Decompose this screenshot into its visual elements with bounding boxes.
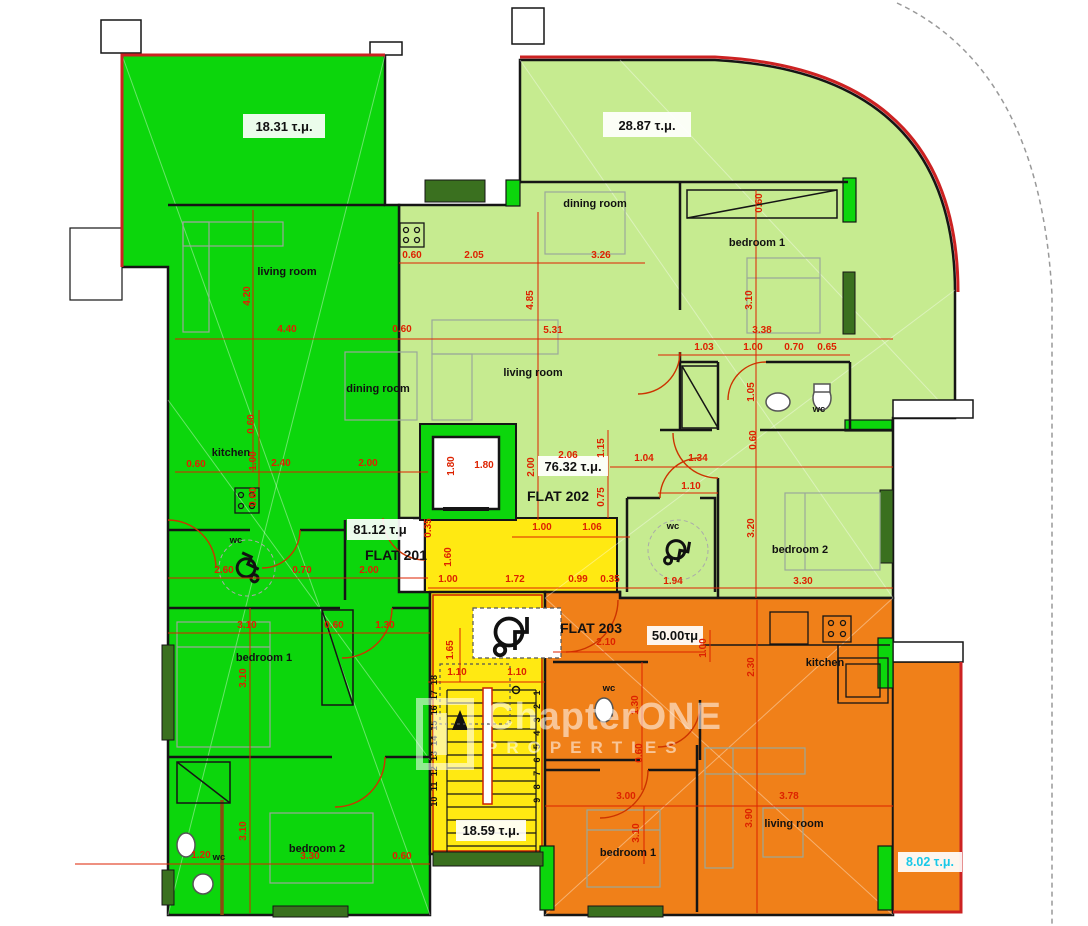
stair-step-number: 18 (429, 675, 439, 685)
stair-step-number: 8 (532, 784, 542, 789)
dimension-label: 1.00 (532, 522, 552, 533)
dimension-label: 5.31 (543, 325, 563, 336)
stair-step-number: 17 (429, 690, 439, 700)
dimension-label: 0.60 (754, 193, 765, 213)
stairwell-area-label: 18.59 τ.μ. (462, 823, 519, 838)
room-202-bedroom2: bedroom 2 (772, 544, 828, 556)
room-201-kitchen: kitchen (212, 447, 251, 459)
dimension-label: 1.04 (634, 453, 654, 464)
stair-step-number: 9 (532, 798, 542, 803)
balcony-203-area-label: 8.02 τ.μ. (906, 855, 954, 869)
dimension-label: 1.05 (746, 382, 757, 402)
dimension-label: 1.65 (445, 640, 456, 660)
dimension-label: 0.99 (568, 574, 588, 585)
dimension-label: 0.60 (748, 430, 759, 450)
dimension-label: 3.30 (300, 851, 320, 862)
dimension-label: 0.60 (392, 324, 412, 335)
room-202-dining: dining room (563, 198, 627, 210)
dimension-label: 0.60 (634, 743, 645, 763)
flat-202-label: FLAT 202 (527, 488, 589, 504)
dimension-label: 3.10 (744, 290, 755, 310)
stair-step-number: 2 (532, 704, 542, 709)
dimension-label: 1.00 (698, 638, 709, 658)
room-203-kitchen: kitchen (806, 657, 845, 669)
dimension-label: 1.60 (443, 547, 454, 567)
dimension-label: 1.72 (505, 574, 525, 585)
flat-203-area-label: 50.00τμ (652, 628, 698, 643)
stair-step-number: 10 (429, 797, 439, 807)
room-203-living: living room (764, 818, 824, 830)
dimension-label: 4.40 (277, 324, 297, 335)
dimension-label: 1.80 (474, 460, 494, 471)
room-202-bedroom1: bedroom 1 (729, 237, 785, 249)
dimension-label: 3.10 (238, 821, 249, 841)
dimension-label: 0.60 (186, 459, 206, 470)
dimension-label: 3.10 (238, 668, 249, 688)
dimension-label: 4.20 (242, 286, 253, 306)
room-203-wc: wc (602, 683, 616, 694)
dimension-label: 1.06 (582, 522, 602, 533)
room-201-bedroom1: bedroom 1 (236, 652, 292, 664)
stair-step-number: 11 (429, 782, 439, 792)
dimension-label: 2.10 (596, 637, 616, 648)
room-201-living: living room (257, 266, 317, 278)
stair-step-number: 14 (429, 736, 439, 746)
room-203-bedroom1: bedroom 1 (600, 847, 656, 859)
sink-201b (193, 874, 213, 894)
dimension-label: 0.60 (324, 620, 344, 631)
room-202-wc2: wc (666, 521, 680, 532)
stair-step-number: 3 (532, 717, 542, 722)
dimension-label: 1.00 (438, 574, 458, 585)
floor-plan-stage: 18.31 τ.μ. 28.87 τ.μ. 76.32 τ.μ. 81.12 τ… (0, 0, 1088, 926)
dimension-label: 2.00 (358, 458, 378, 469)
toilet-203 (595, 698, 613, 722)
dimension-label: 1.30 (630, 695, 641, 715)
dimension-label: 0.70 (784, 342, 804, 353)
stair-step-number: 6 (532, 757, 542, 762)
dimension-label: 0.65 (817, 342, 837, 353)
dimension-label: 3.90 (744, 808, 755, 828)
dimension-label: 1.34 (688, 453, 708, 464)
dimension-label: 1.03 (694, 342, 714, 353)
stair-step-number: 15 (429, 721, 439, 731)
dimension-label: 2.05 (464, 250, 484, 261)
stair-step-number: 12 (429, 766, 439, 776)
elevator (420, 424, 516, 520)
dimension-label: 3.38 (752, 325, 772, 336)
room-201-wc2: wc (212, 852, 226, 863)
stair-step-number: 13 (429, 751, 439, 761)
stair-step-number: 7 (532, 771, 542, 776)
flat-203-label: FLAT 203 (560, 620, 622, 636)
sink-202 (766, 393, 790, 411)
dimension-label: 4.85 (525, 290, 536, 310)
veranda-202-area-label: 28.87 τ.μ. (618, 118, 675, 133)
dimension-label: 2.06 (558, 450, 578, 461)
room-201-wc: wc (229, 535, 243, 546)
dimension-label: 1.00 (248, 451, 259, 471)
floor-plan-drawing: 18.31 τ.μ. 28.87 τ.μ. 76.32 τ.μ. 81.12 τ… (0, 0, 1088, 926)
dimension-label: 1.10 (681, 481, 701, 492)
dimension-label: 3.10 (631, 823, 642, 843)
veranda-201-area-label: 18.31 τ.μ. (255, 119, 312, 134)
dimension-label: 0.60 (248, 487, 259, 507)
dimension-label: 0.75 (596, 487, 607, 507)
dimension-label: 0.60 (246, 414, 257, 434)
dimension-label: 3.26 (591, 250, 611, 261)
dimension-label: 1.10 (507, 667, 527, 678)
flat-201-label: FLAT 201 (365, 547, 427, 563)
room-202-wc: wc (812, 404, 826, 415)
dimension-label: 3.10 (237, 620, 257, 631)
dimension-label: 3.20 (746, 518, 757, 538)
dimension-label: 0.35 (600, 574, 620, 585)
dimension-label: 1.30 (375, 620, 395, 631)
dimension-label: 1.10 (447, 667, 467, 678)
stair-step-number: 1 (532, 690, 542, 695)
stair-step-number: 5 (532, 744, 542, 749)
dimension-label: 3.00 (616, 791, 636, 802)
flat-201-area-label: 81.12 τ.μ (353, 522, 407, 537)
dimension-label: 1.15 (596, 438, 607, 458)
dimension-label: 0.60 (402, 250, 422, 261)
dimension-label: 1.20 (191, 850, 211, 861)
dimension-label: 1.80 (446, 456, 457, 476)
dimension-label: 2.40 (271, 458, 291, 469)
flat-203-balcony-area (893, 662, 961, 912)
dimension-label: 1.94 (663, 576, 683, 587)
dimension-label: 0.60 (392, 851, 412, 862)
dimension-label: 0.35 (423, 518, 434, 538)
dimension-label: 0.70 (292, 565, 312, 576)
dimension-label: 3.30 (793, 576, 813, 587)
dimension-label: 2.00 (526, 457, 537, 477)
dimension-label: 2.60 (214, 565, 234, 576)
dimension-label: 2.00 (359, 565, 379, 576)
dimension-label: 1.00 (743, 342, 763, 353)
room-201-dining: dining room (346, 383, 410, 395)
room-202-living: living room (503, 367, 563, 379)
stair-step-number: 16 (429, 705, 439, 715)
dimension-label: 3.78 (779, 791, 799, 802)
flat-202-area-label: 76.32 τ.μ. (544, 459, 601, 474)
dimension-label: 2.30 (746, 657, 757, 677)
stair-step-number: 4 (532, 731, 542, 736)
